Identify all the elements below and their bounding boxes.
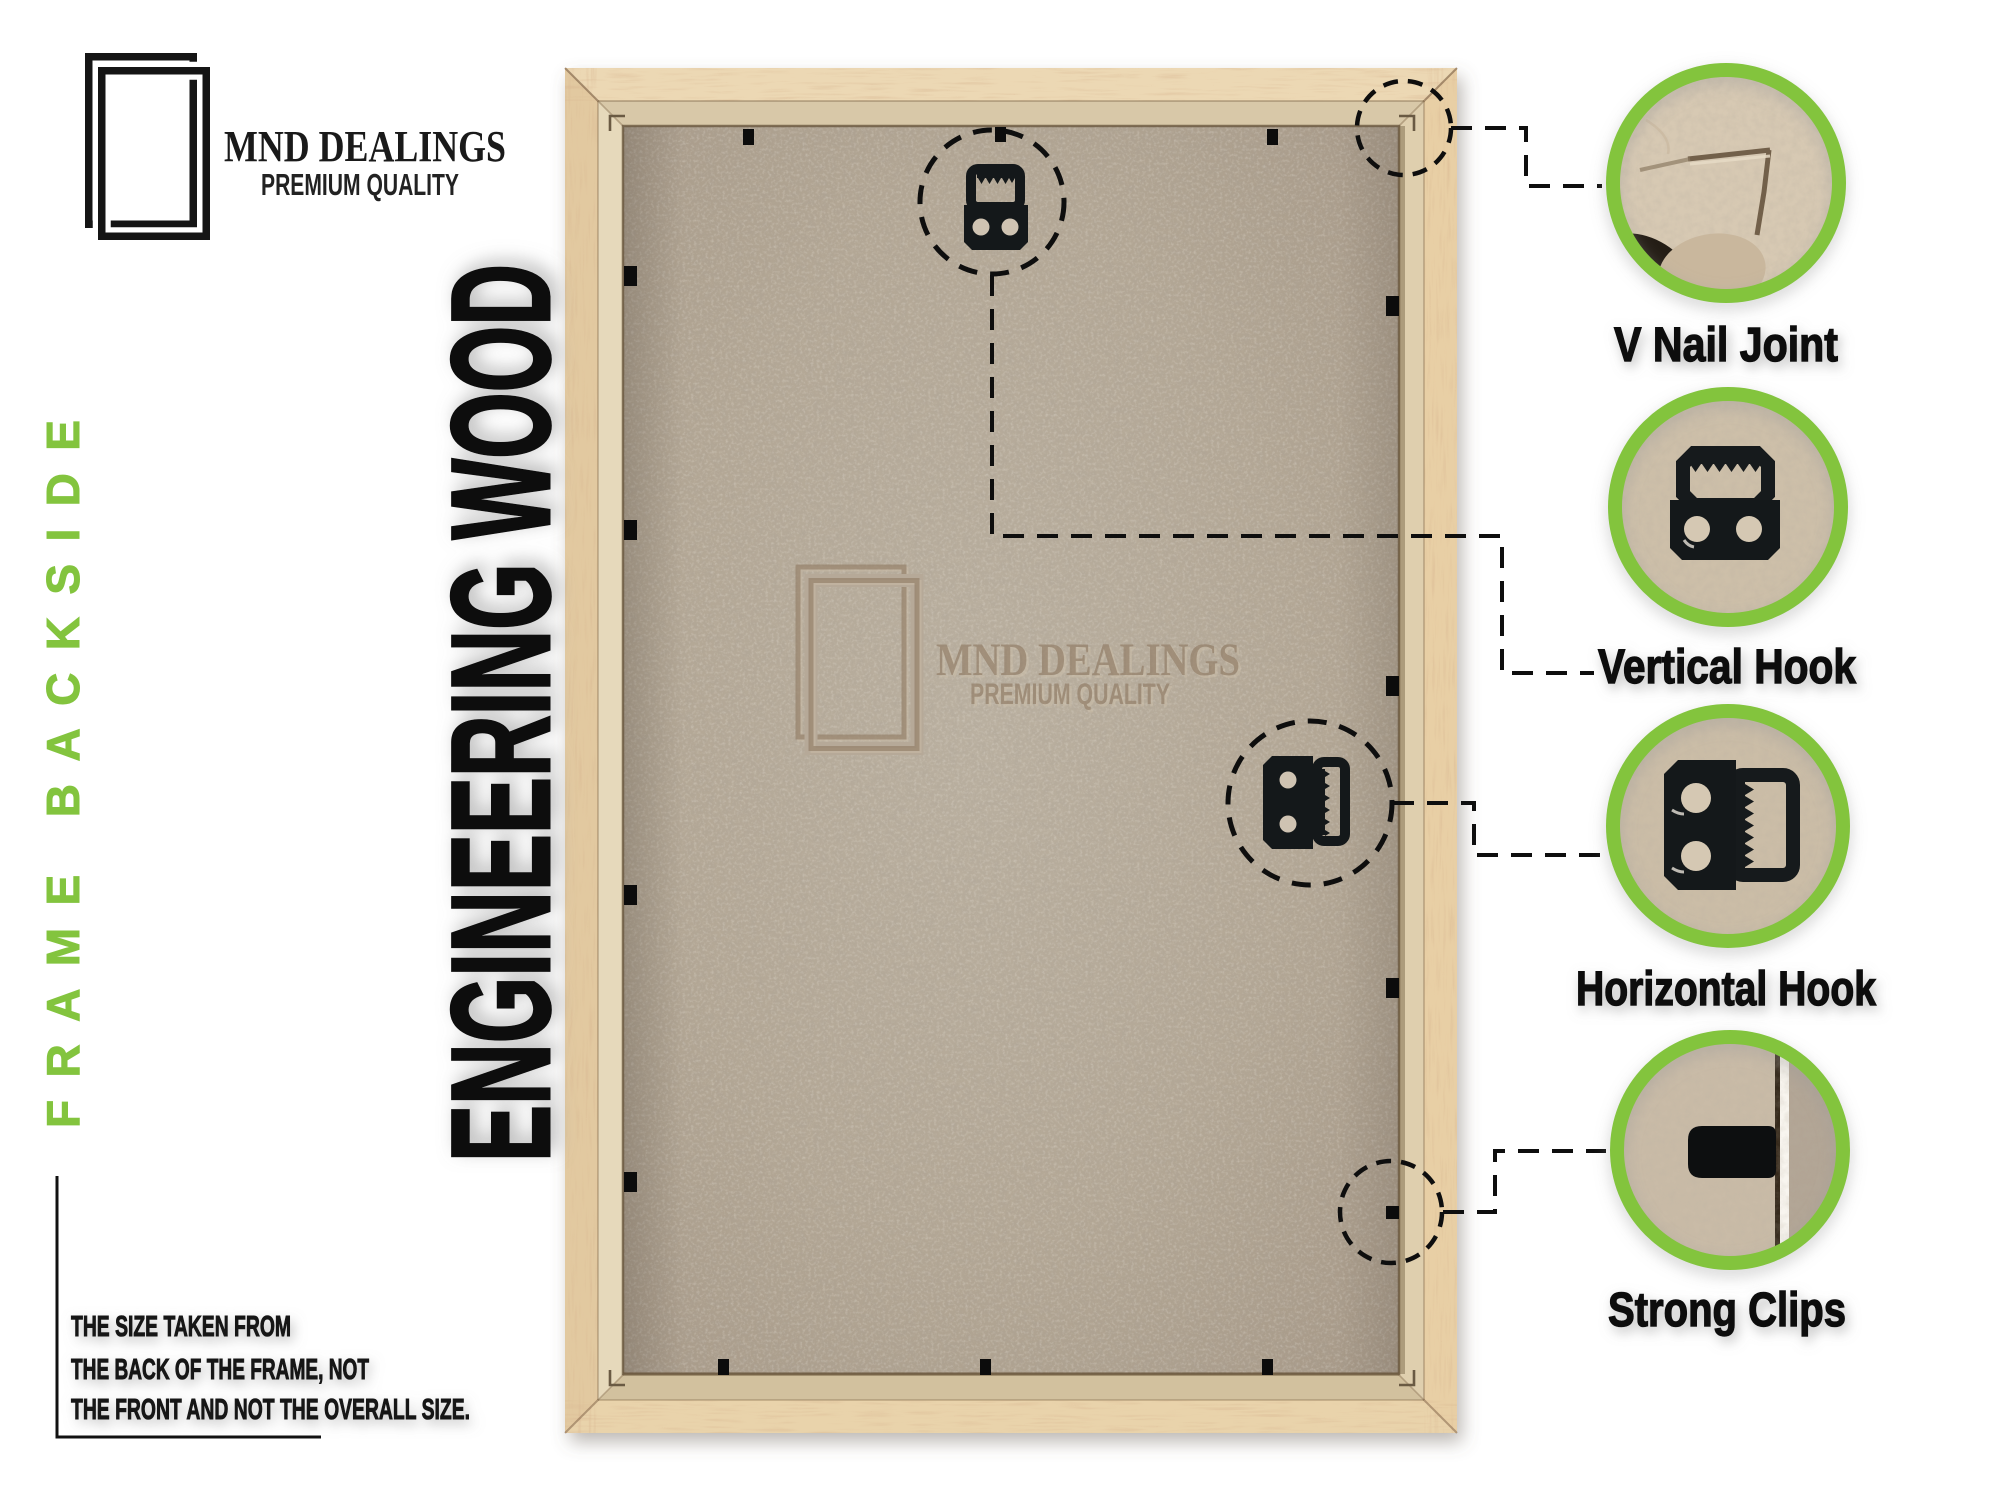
svg-text:Horizontal Hook: Horizontal Hook — [1576, 963, 1876, 1016]
svg-text:Strong Clips: Strong Clips — [1608, 1284, 1846, 1337]
svg-text:PREMIUM QUALITY: PREMIUM QUALITY — [261, 167, 459, 202]
svg-text:Vertical Hook: Vertical Hook — [1598, 641, 1856, 694]
svg-text:THE BACK OF THE FRAME, NOT: THE BACK OF THE FRAME, NOT — [71, 1354, 369, 1386]
svg-text:THE SIZE TAKEN FROM: THE SIZE TAKEN FROM — [71, 1311, 291, 1343]
svg-text:ENGINEERING WOOD: ENGINEERING WOOD — [422, 264, 579, 1162]
svg-text:V Nail Joint: V Nail Joint — [1614, 319, 1838, 372]
svg-text:THE FRONT AND NOT THE OVERALL: THE FRONT AND NOT THE OVERALL SIZE. — [71, 1394, 470, 1426]
svg-text:PREMIUM QUALITY: PREMIUM QUALITY — [970, 678, 1170, 711]
svg-text:FRAME BACKSIDE: FRAME BACKSIDE — [37, 420, 89, 1128]
svg-text:MND DEALINGS: MND DEALINGS — [224, 122, 506, 171]
